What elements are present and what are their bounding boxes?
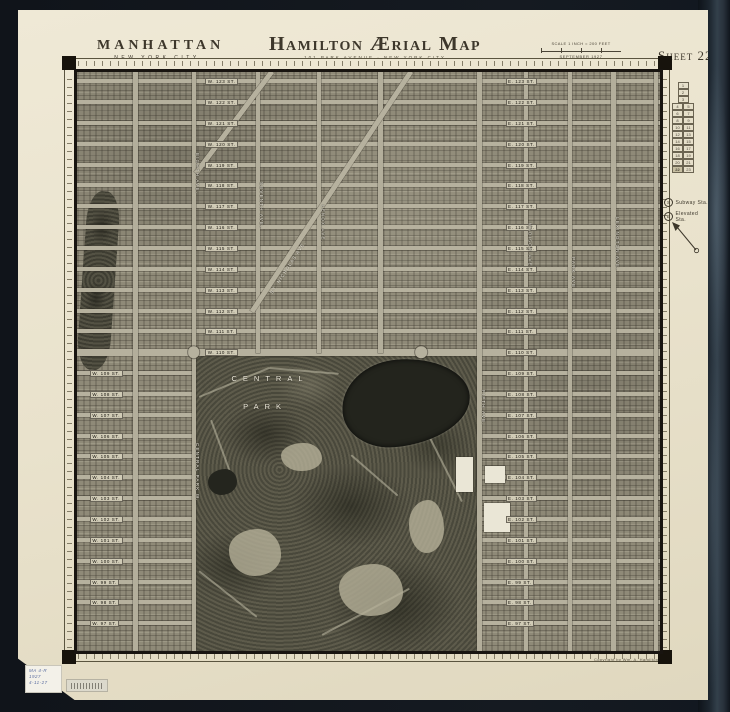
map-title-block: Hamilton Ærial Map 101 PARK AVENUE · NEW… bbox=[265, 34, 485, 60]
street-label-east: E. 111 ST. bbox=[506, 328, 537, 335]
street-label-west: W. 101 ST. bbox=[90, 537, 123, 544]
street-line bbox=[77, 163, 660, 167]
index-row: 1819 bbox=[668, 152, 698, 159]
street-line bbox=[77, 329, 660, 333]
street-label-east: E. 118 ST. bbox=[506, 182, 537, 189]
street-label-east: E. 102 ST. bbox=[506, 516, 538, 523]
index-sheet-cell: 14 bbox=[672, 138, 683, 145]
street-line bbox=[77, 121, 660, 125]
avenue-line bbox=[654, 72, 659, 651]
street-line bbox=[77, 100, 660, 104]
street-label-west: W. 107 ST. bbox=[90, 412, 123, 419]
avenue-line bbox=[133, 72, 138, 651]
street-line bbox=[77, 309, 660, 313]
copyright-note: Copyright by Wm. A. Hamilton bbox=[594, 657, 659, 662]
street-label-west: W. 120 ST. bbox=[205, 141, 238, 148]
street-label-west: W. 98 ST. bbox=[90, 599, 120, 606]
street-label-west: W. 103 ST. bbox=[90, 495, 123, 502]
street-label-east: E. 101 ST. bbox=[506, 537, 538, 544]
street-label-west: W. 115 ST. bbox=[205, 245, 237, 252]
index-sheet-cell: 22 bbox=[672, 166, 683, 173]
morningside-park-area bbox=[75, 190, 120, 371]
street-line bbox=[77, 246, 660, 250]
index-sheet-cell: 16 bbox=[672, 145, 683, 152]
street-label-west: W. 118 ST. bbox=[205, 182, 237, 189]
index-sheet-cell: 5 bbox=[683, 103, 694, 110]
scale-bar bbox=[541, 48, 621, 53]
street-line bbox=[77, 79, 660, 83]
map-frame: CENTRAL PARK W. 123 ST.E. 123 ST.W. 122 … bbox=[64, 58, 670, 662]
street-label-west: W. 100 ST. bbox=[90, 558, 123, 565]
street-label-east: E. 122 ST. bbox=[506, 99, 538, 106]
index-sheet-cell: 18 bbox=[672, 152, 683, 159]
index-sheet-cell: 2 bbox=[678, 89, 689, 96]
street-label-west: W. 111 ST. bbox=[205, 328, 237, 335]
index-sheet-cell: 19 bbox=[683, 152, 694, 159]
index-sheet-cell: 15 bbox=[683, 138, 694, 145]
street-label-east: E. 103 ST. bbox=[506, 495, 538, 502]
street-label-east: E. 112 ST. bbox=[506, 308, 537, 315]
index-sheet-cell: 23 bbox=[683, 166, 694, 173]
corner-marker-top-right bbox=[658, 56, 672, 70]
street-label-west: W. 109 ST. bbox=[90, 370, 123, 377]
barcode-sticker bbox=[66, 679, 108, 692]
index-row: 1011 bbox=[668, 124, 698, 131]
scale-block: SCALE 1 INCH = 200 FEET SEPTEMBER 1927 bbox=[537, 41, 625, 59]
avenue-label: LENOX AVE. bbox=[320, 205, 325, 243]
legend-elevated-row: E Elevated Sta. bbox=[664, 211, 708, 223]
index-sheet-cell: 8 bbox=[672, 117, 683, 124]
avenue-label: MADISON AVE. bbox=[527, 223, 532, 269]
park-lawn bbox=[409, 500, 444, 552]
street-label-west: W. 121 ST. bbox=[205, 120, 238, 127]
library-call-number-sticker: MA 4-R 1927 4-11-27 bbox=[25, 665, 62, 693]
street-line bbox=[77, 142, 660, 146]
street-label-west: W. 122 ST. bbox=[205, 99, 238, 106]
street-label-west: W. 99 ST. bbox=[90, 579, 120, 586]
street-line bbox=[77, 183, 660, 187]
central-park-label-line2: PARK bbox=[243, 402, 287, 411]
ruler-left bbox=[67, 72, 72, 648]
street-label-east: E. 110 ST. bbox=[506, 349, 537, 356]
north-arrow-icon bbox=[670, 222, 704, 256]
park-lawn bbox=[281, 443, 322, 472]
index-sheet-cell: 21 bbox=[683, 159, 694, 166]
subway-station-label: Subway Sta. bbox=[676, 200, 708, 206]
traffic-circle bbox=[415, 346, 427, 358]
street-label-east: E. 99 ST. bbox=[506, 579, 535, 586]
avenue-label: SEVENTH AVE. bbox=[259, 182, 264, 229]
sheet-index-map: 1234567891011121314151617181920212223 bbox=[668, 82, 698, 173]
avenue-line bbox=[568, 72, 573, 651]
street-label-west: W. 104 ST. bbox=[90, 474, 123, 481]
park-lawn bbox=[229, 529, 281, 575]
index-sheet-cell: 13 bbox=[683, 131, 694, 138]
street-label-east: E. 117 ST. bbox=[506, 203, 537, 210]
traffic-circle bbox=[188, 346, 200, 358]
street-label-east: E. 119 ST. bbox=[506, 162, 537, 169]
avenue-label: EIGHTH AVE. bbox=[195, 153, 200, 194]
index-row: 67 bbox=[668, 110, 698, 117]
region-title: MANHATTAN bbox=[97, 38, 217, 54]
index-row: 1415 bbox=[668, 138, 698, 145]
index-row: 45 bbox=[668, 103, 698, 110]
street-label-east: E. 104 ST. bbox=[506, 474, 538, 481]
avenue-line bbox=[477, 72, 482, 651]
street-label-west: W. 114 ST. bbox=[205, 266, 237, 273]
map-title: Hamilton Ærial Map bbox=[265, 34, 485, 54]
index-sheet-cell: 10 bbox=[672, 124, 683, 131]
index-sheet-cell: 12 bbox=[672, 131, 683, 138]
scale-label: SCALE 1 INCH = 200 FEET bbox=[537, 41, 625, 46]
index-row: 3 bbox=[668, 96, 698, 103]
index-sheet-cell: 3 bbox=[678, 96, 689, 103]
sticker-line3: 4-11-27 bbox=[29, 680, 58, 686]
legend-subway-row: S Subway Sta. bbox=[664, 198, 708, 207]
map-sheet-paper: MANHATTAN NEW YORK CITY Hamilton Ærial M… bbox=[18, 10, 708, 700]
street-label-east: E. 105 ST. bbox=[506, 453, 538, 460]
diagonal-avenue-line bbox=[250, 70, 413, 313]
street-label-west: W. 102 ST. bbox=[90, 516, 123, 523]
central-park-label-line1: CENTRAL bbox=[231, 374, 308, 383]
index-sheet-cell: 17 bbox=[683, 145, 694, 152]
index-row: 1213 bbox=[668, 131, 698, 138]
street-label-east: E. 123 ST. bbox=[506, 78, 538, 85]
index-row: 2021 bbox=[668, 159, 698, 166]
street-label-east: E. 98 ST. bbox=[506, 599, 535, 606]
barcode-bars bbox=[71, 683, 103, 689]
street-label-west: W. 112 ST. bbox=[205, 308, 237, 315]
index-row: 2223 bbox=[668, 166, 698, 173]
street-label-east: E. 120 ST. bbox=[506, 141, 538, 148]
scanned-map-photo: { "header": { "region_title": "MANHATTAN… bbox=[0, 0, 730, 712]
index-row: 1 bbox=[668, 82, 698, 89]
street-label-east: E. 106 ST. bbox=[506, 433, 538, 440]
index-sheet-cell: 7 bbox=[683, 110, 694, 117]
street-label-west: W. 97 ST. bbox=[90, 620, 120, 627]
avenue-label: CENTRAL PARK W. bbox=[195, 443, 200, 502]
index-sheet-cell: 9 bbox=[683, 117, 694, 124]
index-row: 2 bbox=[668, 89, 698, 96]
street-line bbox=[77, 349, 660, 356]
index-sheet-cell: 6 bbox=[672, 110, 683, 117]
park-lawn bbox=[339, 564, 403, 616]
ruler-bottom bbox=[78, 654, 656, 659]
street-label-west: W. 108 ST. bbox=[90, 391, 123, 398]
index-sheet-cell: 20 bbox=[672, 159, 683, 166]
elevated-station-icon: E bbox=[664, 212, 673, 221]
avenue-line bbox=[611, 72, 616, 651]
street-label-east: E. 109 ST. bbox=[506, 370, 538, 377]
street-label-west: W. 116 ST. bbox=[205, 224, 237, 231]
index-sheet-cell: 4 bbox=[672, 103, 683, 110]
street-label-east: E. 121 ST. bbox=[506, 120, 538, 127]
elevated-station-label: Elevated Sta. bbox=[676, 211, 709, 223]
avenue-label: FIFTH AVE. bbox=[481, 390, 486, 426]
street-label-east: E. 107 ST. bbox=[506, 412, 538, 419]
street-label-east: E. 100 ST. bbox=[506, 558, 538, 565]
street-line bbox=[77, 225, 660, 229]
index-sheet-cell: 1 bbox=[678, 82, 689, 89]
street-label-west: W. 113 ST. bbox=[205, 287, 237, 294]
index-row: 89 bbox=[668, 117, 698, 124]
street-label-east: E. 97 ST. bbox=[506, 620, 535, 627]
index-row: 1617 bbox=[668, 145, 698, 152]
street-label-west: W. 123 ST. bbox=[205, 78, 238, 85]
avenue-label: PARK AVE. bbox=[571, 257, 576, 291]
street-label-west: W. 119 ST. bbox=[205, 162, 237, 169]
street-label-west: W. 106 ST. bbox=[90, 433, 123, 440]
aerial-photo: CENTRAL PARK W. 123 ST.E. 123 ST.W. 122 … bbox=[74, 69, 663, 654]
street-label-east: E. 113 ST. bbox=[506, 287, 537, 294]
ruler-top bbox=[78, 61, 656, 66]
street-label-west: W. 105 ST. bbox=[90, 453, 123, 460]
white-building bbox=[485, 466, 505, 483]
street-line bbox=[77, 204, 660, 208]
subway-station-icon: S bbox=[664, 198, 673, 207]
index-sheet-cell: 11 bbox=[683, 124, 694, 131]
street-label-west: W. 117 ST. bbox=[205, 203, 237, 210]
corner-marker-top-left bbox=[62, 56, 76, 70]
street-label-west: W. 110 ST. bbox=[205, 349, 237, 356]
street-label-east: E. 108 ST. bbox=[506, 391, 538, 398]
avenue-label: LEXINGTON AVE. bbox=[615, 217, 620, 271]
white-building bbox=[456, 457, 473, 492]
